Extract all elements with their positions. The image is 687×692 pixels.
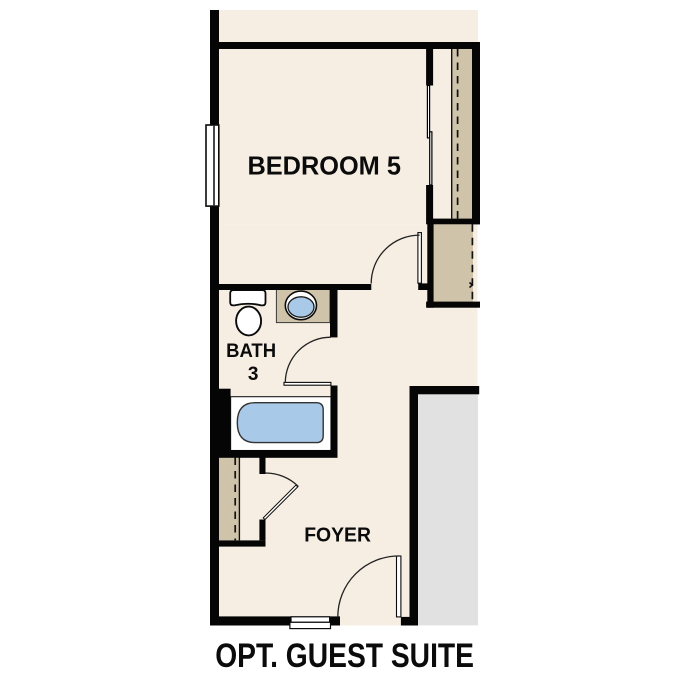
svg-text:OPT. GUEST SUITE: OPT. GUEST SUITE <box>215 637 474 675</box>
svg-text:BATH: BATH <box>226 341 276 362</box>
svg-text:3: 3 <box>248 364 259 385</box>
svg-text:FOYER: FOYER <box>304 524 371 546</box>
svg-text:BEDROOM 5: BEDROOM 5 <box>247 151 401 181</box>
